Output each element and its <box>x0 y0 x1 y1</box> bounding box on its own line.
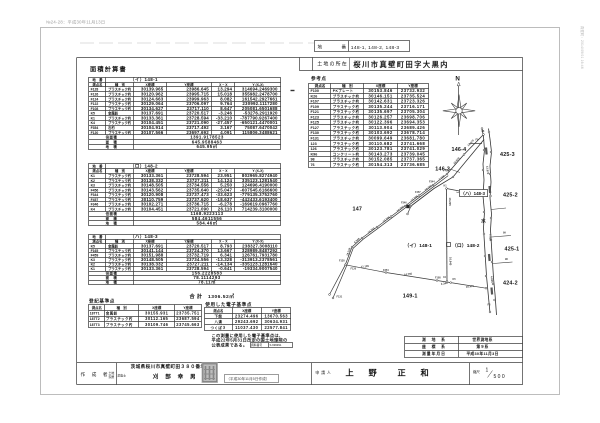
svg-text:茨城県桜川市真壁町田３８０番地: 茨城県桜川市真壁町田３８０番地 <box>131 363 206 370</box>
svg-text:F100: F100 <box>311 89 319 93</box>
svg-text:18TT1: 18TT1 <box>90 312 100 316</box>
svg-text:公表成果である。: 公表成果である。 <box>212 341 248 348</box>
svg-text:プラスチック杓: プラスチック杓 <box>108 257 132 262</box>
svg-text:プラスチック杓: プラスチック杓 <box>108 115 132 120</box>
svg-text:23736.685: 23736.685 <box>401 162 426 167</box>
svg-text:プラスチック杓: プラスチック杓 <box>108 120 132 125</box>
svg-text:地 積: 地 積 <box>106 280 118 285</box>
svg-text:30153.846: 30153.846 <box>368 88 393 93</box>
svg-text:プラスチック杓: プラスチック杓 <box>333 93 360 98</box>
svg-text:部: 部 <box>165 373 171 381</box>
svg-text:149-1: 149-1 <box>403 294 418 300</box>
svg-text:K5: K5 <box>91 112 95 116</box>
svg-text:4.835: 4.835 <box>490 276 494 283</box>
svg-text:参考点: 参考点 <box>311 75 327 82</box>
svg-text:F354: F354 <box>91 126 99 130</box>
svg-text:F346: F346 <box>401 202 407 205</box>
svg-text:プラスチック杓: プラスチック杓 <box>108 252 132 257</box>
svg-text:プラスチック杓: プラスチック杓 <box>333 120 360 125</box>
svg-text:幸: 幸 <box>178 373 184 381</box>
svg-text:584.46㎡: 584.46㎡ <box>197 220 218 226</box>
svg-text:上: 上 <box>346 368 354 378</box>
svg-text:23681.780: 23681.780 <box>401 136 426 141</box>
svg-text:30123.781: 30123.781 <box>368 146 393 151</box>
svg-text:プラスチック杓: プラスチック杓 <box>333 141 360 146</box>
svg-text:425-2: 425-2 <box>503 193 518 199</box>
svg-text:X座標: X座標 <box>242 308 252 313</box>
svg-text:プラスチック杓: プラスチック杓 <box>108 206 132 211</box>
svg-text:F344: F344 <box>91 193 99 197</box>
svg-text:（平成30年11月5日作成）: （平成30年11月5日作成） <box>226 376 269 381</box>
svg-text:番: 番 <box>342 44 347 51</box>
svg-text:30154.313: 30154.313 <box>368 162 393 167</box>
svg-text:面積計算書: 面積計算書 <box>90 65 127 73</box>
svg-text:種 別: 種 別 <box>115 239 126 244</box>
svg-text:1: 1 <box>486 367 489 373</box>
svg-text:面 積: 面 積 <box>106 275 118 280</box>
svg-text:種 別: 種 別 <box>342 83 353 88</box>
svg-text:水: 水 <box>480 217 486 224</box>
svg-text:23732.932: 23732.932 <box>401 88 426 93</box>
svg-text:23678.714: 23678.714 <box>401 130 426 135</box>
svg-text:425-3: 425-3 <box>500 152 515 158</box>
svg-text:地 番: 地 番 <box>92 163 103 168</box>
svg-text:プラスチック杓: プラスチック杓 <box>108 173 132 178</box>
svg-text:F457: F457 <box>415 191 421 194</box>
svg-text:S.999991: S.999991 <box>270 343 282 347</box>
svg-text:146-4: 146-4 <box>452 147 467 153</box>
svg-text:種 別: 種 別 <box>115 168 126 173</box>
svg-text:16.940: 16.940 <box>448 257 452 266</box>
svg-text:座 標 系: 座 標 系 <box>421 344 446 349</box>
svg-text:倍面積: 倍面積 <box>105 135 118 140</box>
svg-text:プラスチック杓: プラスチック杓 <box>333 125 360 130</box>
svg-text:登記基準点: 登記基準点 <box>88 298 115 305</box>
svg-text:5 0 0: 5 0 0 <box>494 374 505 380</box>
svg-text:7.105: 7.105 <box>488 234 492 241</box>
svg-text:30146.151: 30146.151 <box>368 93 393 98</box>
svg-text:K1: K1 <box>91 174 95 178</box>
svg-text:30107.566: 30107.566 <box>141 130 164 135</box>
svg-text:76: 76 <box>311 163 315 167</box>
svg-text:-19334.9007540: -19334.9007540 <box>243 266 278 271</box>
svg-text:地 番: 地 番 <box>92 234 103 239</box>
svg-text:23716.171: 23716.171 <box>401 104 426 109</box>
svg-text:K26: K26 <box>311 94 318 98</box>
svg-text:プラスチック杓: プラスチック杓 <box>333 146 360 151</box>
svg-text:10.205: 10.205 <box>448 198 452 207</box>
svg-text:146-3: 146-3 <box>435 167 450 173</box>
svg-text:F124: F124 <box>91 97 99 101</box>
svg-text:面 積: 面 積 <box>106 139 118 144</box>
svg-text:X座標: X座標 <box>152 305 162 310</box>
svg-text:測点名: 測点名 <box>92 239 102 244</box>
svg-text:測点名: 測点名 <box>92 82 102 87</box>
svg-text:平成30年11月3日: 平成30年11月3日 <box>466 351 498 356</box>
svg-text:プラスチック杓: プラスチック杓 <box>333 162 360 167</box>
svg-text:18TT3: 18TT3 <box>90 323 100 327</box>
svg-text:正: 正 <box>398 369 406 378</box>
svg-text:地 積: 地 積 <box>106 221 118 226</box>
svg-text:115806.3488621: 115806.3488621 <box>242 130 278 135</box>
svg-text:F108: F108 <box>435 276 441 279</box>
svg-text:成: 成 <box>92 371 97 378</box>
svg-text:地 積: 地 積 <box>106 144 118 149</box>
svg-text:石杓: 石杓 <box>107 125 115 130</box>
svg-text:プラスチック杓: プラスチック杓 <box>333 136 360 141</box>
svg-text:プラスチック杓: プラスチック杓 <box>106 316 133 321</box>
svg-text:プラスチック杓: プラスチック杓 <box>108 261 132 266</box>
svg-text:30110.682: 30110.682 <box>368 141 392 146</box>
svg-text:資料番号: 資料番号 <box>251 343 262 347</box>
svg-text:№24-28：平成30年11月13日: №24-28：平成30年11月13日 <box>46 19 105 26</box>
svg-text:126: 126 <box>311 147 317 151</box>
svg-text:種 別: 種 別 <box>117 305 128 310</box>
svg-text:つくば３: つくば３ <box>211 325 227 330</box>
svg-text:F354: F354 <box>383 269 389 272</box>
svg-text:F122: F122 <box>91 102 99 106</box>
svg-text:K96: K96 <box>311 152 318 156</box>
svg-text:30103.692: 30103.692 <box>368 130 393 135</box>
svg-text:倍面積: 倍面積 <box>105 271 118 276</box>
svg-text:23739.045: 23739.045 <box>401 151 426 156</box>
svg-text:プラスチック杓: プラスチック杓 <box>108 248 132 253</box>
svg-text:男: 男 <box>190 373 196 381</box>
svg-text:F346: F346 <box>91 203 99 207</box>
svg-text:23741.668: 23741.668 <box>401 141 426 146</box>
svg-text:プラスチック杓: プラスチック杓 <box>108 187 132 192</box>
svg-text:12.870: 12.870 <box>485 166 490 175</box>
svg-text:1306.52㎡: 1306.52㎡ <box>208 293 235 300</box>
svg-text:測点名: 測点名 <box>92 168 102 173</box>
svg-text:F121: F121 <box>311 110 319 114</box>
svg-text:請: 請 <box>321 370 325 375</box>
svg-text:縮尺: 縮尺 <box>473 369 480 374</box>
svg-text:プラスチック杓: プラスチック杓 <box>108 197 132 202</box>
svg-text:F125: F125 <box>311 121 319 125</box>
svg-text:金属鋲: 金属鋲 <box>107 243 119 248</box>
svg-text:30122.396: 30122.396 <box>368 120 393 125</box>
svg-text:プラスチック杓: プラスチック杓 <box>106 322 133 327</box>
svg-text:測量年月日: 測量年月日 <box>422 351 446 356</box>
svg-text:F126: F126 <box>91 92 99 96</box>
svg-text:23741.029: 23741.029 <box>401 146 426 151</box>
svg-text:F131: F131 <box>337 296 343 299</box>
svg-text:金属鋲: 金属鋲 <box>105 311 118 316</box>
svg-text:申: 申 <box>315 370 319 375</box>
svg-text:プラスチック杓: プラスチック杓 <box>333 157 360 162</box>
svg-text:F120: F120 <box>351 268 357 271</box>
svg-text:第９系: 第９系 <box>476 344 488 349</box>
svg-text:23274.496: 23274.496 <box>235 313 259 318</box>
svg-text:世界測地系: 世界測地系 <box>472 337 492 342</box>
svg-text:面 積: 面 積 <box>106 216 118 221</box>
svg-text:30112.165: 30112.165 <box>145 316 168 321</box>
svg-text:F130: F130 <box>339 260 345 263</box>
svg-text:プラスチック杓: プラスチック杓 <box>108 91 132 96</box>
svg-text:家屋: 家屋 <box>109 374 115 379</box>
svg-text:714239.3100000: 714239.3100000 <box>242 206 278 211</box>
svg-text:土地の所在: 土地の所在 <box>317 61 348 68</box>
svg-text:プラスチック杓: プラスチック杓 <box>108 87 132 92</box>
svg-text:プラスチック杓: プラスチック杓 <box>108 130 132 135</box>
svg-text:プラスチック杓: プラスチック杓 <box>333 104 360 109</box>
svg-text:147: 147 <box>353 207 363 213</box>
svg-text:30152.085: 30152.085 <box>368 157 393 162</box>
svg-text:30155.931: 30155.931 <box>145 311 169 316</box>
svg-text:30142.631: 30142.631 <box>368 99 393 104</box>
svg-text:Y座標: Y座標 <box>183 305 193 310</box>
svg-text:プラスチック杓: プラスチック杓 <box>108 178 132 183</box>
svg-text:30099.649: 30099.649 <box>368 136 393 141</box>
svg-text:30104.451: 30104.451 <box>141 206 164 211</box>
svg-text:29243.692: 29243.692 <box>235 319 259 324</box>
svg-text:プラスチック杓: プラスチック杓 <box>108 106 132 111</box>
svg-text:真壁町：2014/09/01 16:46: 真壁町：2014/09/01 16:46 <box>580 26 585 69</box>
svg-text:23745.663: 23745.663 <box>176 322 200 327</box>
svg-text:プラスチック杓: プラスチック杓 <box>108 202 132 207</box>
svg-text:K5: K5 <box>91 244 95 248</box>
svg-text:F456: F456 <box>91 188 99 192</box>
svg-text:プラスチック杓: プラスチック杓 <box>108 192 132 197</box>
svg-text:金属鋲: 金属鋲 <box>107 111 119 116</box>
svg-text:F123: F123 <box>311 115 319 119</box>
svg-text:23705.304: 23705.304 <box>401 109 426 114</box>
svg-text:測点名: 測点名 <box>315 83 326 88</box>
svg-text:K2: K2 <box>91 262 95 266</box>
svg-text:作: 作 <box>81 371 86 378</box>
svg-text:測 地 系: 測 地 系 <box>422 337 446 342</box>
svg-text:K4: K4 <box>91 121 95 125</box>
svg-text:野: 野 <box>369 369 378 378</box>
svg-text:種 別: 種 別 <box>115 82 126 87</box>
svg-text:F344: F344 <box>429 181 435 184</box>
svg-text:N: N <box>455 76 460 83</box>
svg-text:F131: F131 <box>311 137 319 141</box>
svg-text:30113.904: 30113.904 <box>368 125 392 130</box>
svg-text:23694.353: 23694.353 <box>401 120 426 125</box>
svg-text:K3: K3 <box>91 258 95 262</box>
svg-text:F109: F109 <box>311 105 319 109</box>
svg-text:30133.361: 30133.361 <box>141 266 164 271</box>
svg-text:11037.430: 11037.430 <box>235 325 258 330</box>
svg-text:148-1, 148-2, 148-3: 148-1, 148-2, 148-3 <box>351 45 400 51</box>
svg-text:123: 123 <box>311 142 317 146</box>
svg-text:プラスチック杓: プラスチック杓 <box>333 99 360 104</box>
svg-text:23735.751: 23735.751 <box>176 311 200 316</box>
svg-text:プラスチック杓: プラスチック杓 <box>108 183 132 188</box>
svg-text:合計: 合計 <box>190 292 205 300</box>
svg-text:13670.563: 13670.563 <box>265 313 289 318</box>
svg-text:30143.273: 30143.273 <box>368 151 393 156</box>
svg-text:和: 和 <box>420 368 429 378</box>
svg-text:30135.244: 30135.244 <box>368 104 393 109</box>
svg-text:23689.426: 23689.426 <box>401 125 426 130</box>
svg-text:倍面積: 倍面積 <box>105 211 118 216</box>
svg-text:測点名: 測点名 <box>92 305 102 310</box>
svg-text:測点名: 測点名 <box>213 308 223 313</box>
svg-text:30634.931: 30634.931 <box>265 319 289 324</box>
svg-text:Y座標: Y座標 <box>272 308 282 313</box>
svg-text:プラスチック杓: プラスチック杓 <box>108 96 132 101</box>
svg-text:F459: F459 <box>91 253 99 257</box>
svg-text:（ロ）148-2: （ロ）148-2 <box>452 243 480 249</box>
svg-text:プラスチック杓: プラスチック杓 <box>108 101 132 106</box>
svg-text:プラスチック杓: プラスチック杓 <box>108 266 132 271</box>
svg-text:プラスチック杓: プラスチック杓 <box>333 109 360 114</box>
svg-text:プラスチック杓: プラスチック杓 <box>333 114 360 119</box>
svg-text:424-2: 424-2 <box>503 281 518 287</box>
svg-text:30126.257: 30126.257 <box>368 114 393 119</box>
svg-text:30135.697: 30135.697 <box>368 109 393 114</box>
svg-text:K1: K1 <box>91 116 95 120</box>
svg-text:K1: K1 <box>91 267 95 271</box>
svg-text:23735.524: 23735.524 <box>401 93 426 98</box>
svg-text:30109.746: 30109.746 <box>145 322 169 327</box>
svg-text:22577.841: 22577.841 <box>265 325 289 330</box>
svg-text:K4: K4 <box>91 207 95 211</box>
svg-text:78.11㎡: 78.11㎡ <box>198 279 216 285</box>
svg-text:地 番: 地 番 <box>92 77 103 82</box>
svg-text:PKプレート: PKプレート <box>333 88 354 93</box>
svg-text:23687.594: 23687.594 <box>176 316 200 321</box>
svg-text:23723.326: 23723.326 <box>401 99 426 104</box>
svg-text:刈: 刈 <box>153 373 159 381</box>
svg-text:調査士: 調査士 <box>118 373 127 378</box>
svg-text:23737.365: 23737.365 <box>401 157 426 162</box>
svg-text:K3: K3 <box>91 184 95 188</box>
svg-text:地: 地 <box>318 44 323 50</box>
svg-text:桜川市真壁町田字大黒内: 桜川市真壁町田字大黒内 <box>353 60 449 69</box>
svg-text:人: 人 <box>327 370 331 375</box>
svg-text:645.95㎡: 645.95㎡ <box>197 143 218 149</box>
svg-text:（イ）148-1: （イ）148-1 <box>405 243 433 249</box>
svg-text:425-1: 425-1 <box>505 247 520 253</box>
svg-text:八溝: 八溝 <box>214 319 222 324</box>
svg-text:F130: F130 <box>311 131 319 135</box>
svg-text:F127: F127 <box>311 126 319 130</box>
svg-text:23698.706: 23698.706 <box>401 114 426 119</box>
svg-text:F107: F107 <box>311 100 319 104</box>
svg-text:18TT2: 18TT2 <box>90 317 100 321</box>
svg-text:F128: F128 <box>91 88 99 92</box>
svg-text:プラスチック杓: プラスチック杓 <box>333 130 360 135</box>
svg-text:コンクリート杓: コンクリート杓 <box>333 151 360 156</box>
svg-text:下館: 下館 <box>214 313 222 318</box>
svg-text:98: 98 <box>311 158 315 162</box>
